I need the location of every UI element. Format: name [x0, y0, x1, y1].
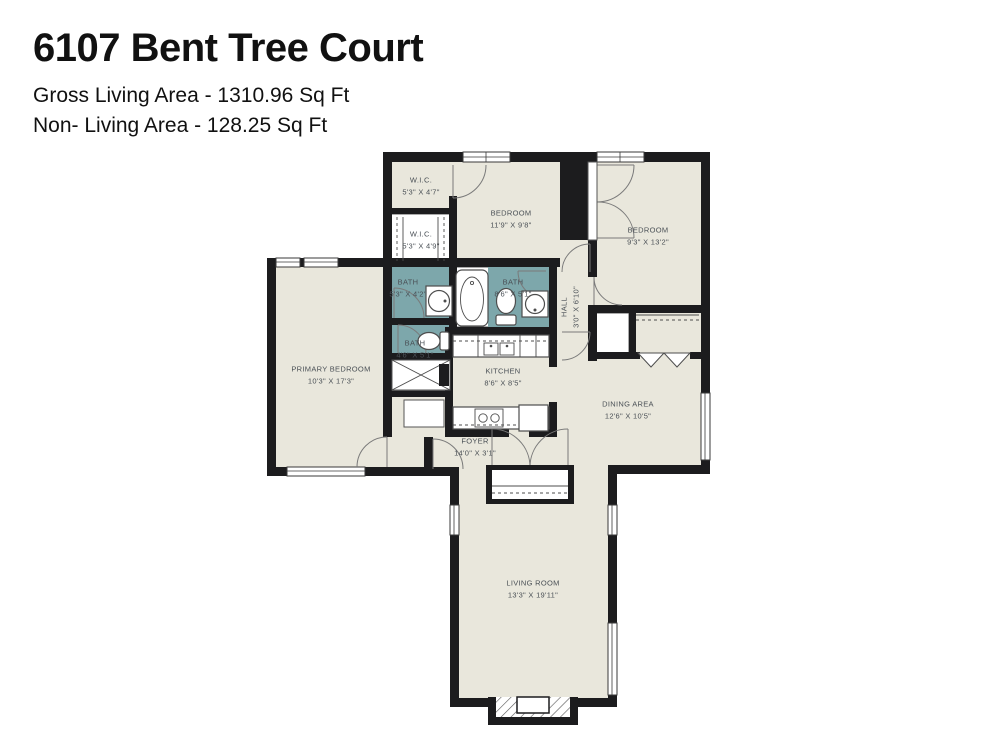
floor-plan-page: 6107 Bent Tree Court Gross Living Area -… — [0, 0, 1000, 750]
kitchen-counter — [453, 405, 549, 431]
room-label-wic1: W.I.C.5'3" X 4'7" — [402, 174, 439, 197]
room-dimensions: 4'6" X 5'1" — [396, 349, 433, 361]
room-label-kitchen: KITCHEN8'6" X 8'5" — [484, 365, 521, 388]
room-label-living: LIVING ROOM13'3" X 19'11" — [506, 577, 559, 600]
window — [701, 393, 710, 460]
room-label-foyer: FOYER14'0" X 3'1" — [454, 435, 496, 458]
room-dimensions: 8'6" X 5'1" — [494, 288, 531, 300]
room-label-primary: PRIMARY BEDROOM10'3" X 17'3" — [291, 363, 370, 386]
foyer-closet — [486, 465, 574, 504]
room-label-bath2: BATH8'6" X 5'1" — [494, 276, 531, 299]
room-label-bath1: BATH5'3" X 4'2" — [389, 276, 426, 299]
refrigerator-icon — [519, 405, 548, 431]
room-name: BEDROOM — [490, 207, 531, 219]
linen-cabinet — [404, 400, 444, 427]
room-dimensions: 14'0" X 3'1" — [454, 447, 496, 459]
room-label-bedroom2: BEDROOM9'3" X 13'2" — [627, 224, 669, 247]
room-dimensions: 5'3" X 4'9" — [402, 240, 439, 252]
sink-icon — [426, 286, 452, 316]
window — [276, 258, 300, 267]
room-name: FOYER — [454, 435, 496, 447]
window — [463, 152, 510, 162]
room-dimensions: 10'3" X 17'3" — [291, 375, 370, 387]
room-dimensions: 12'6" X 10'5" — [602, 410, 654, 422]
window — [304, 258, 338, 267]
room-name: KITCHEN — [484, 365, 521, 377]
room-name: HALL — [558, 286, 570, 328]
window — [608, 623, 617, 695]
room-name: LIVING ROOM — [506, 577, 559, 589]
room-name: BATH — [389, 276, 426, 288]
room-label-bedroom1: BEDROOM11'9" X 9'8" — [490, 207, 531, 230]
room-name: PRIMARY BEDROOM — [291, 363, 370, 375]
closet-strip — [588, 162, 597, 240]
room-dimensions: 5'3" X 4'7" — [402, 186, 439, 198]
bathtub-icon — [456, 270, 488, 326]
room-name: W.I.C. — [402, 174, 439, 186]
room-dimensions: 8'6" X 8'5" — [484, 377, 521, 389]
room-label-hall: HALL3'0" X 6'10" — [558, 286, 581, 328]
window — [287, 467, 365, 476]
room-dimensions: 3'0" X 6'10" — [570, 286, 582, 328]
room-name: BEDROOM — [627, 224, 669, 236]
room-label-wic2: W.I.C.5'3" X 4'9" — [402, 228, 439, 251]
room-dimensions: 9'3" X 13'2" — [627, 236, 669, 248]
room-name: DINING AREA — [602, 398, 654, 410]
room-name: W.I.C. — [402, 228, 439, 240]
room-dimensions: 11'9" X 9'8" — [490, 219, 531, 231]
window — [608, 505, 617, 535]
window — [450, 505, 459, 535]
room-dimensions: 5'3" X 4'2" — [389, 288, 426, 300]
room-label-dining: DINING AREA12'6" X 10'5" — [602, 398, 654, 421]
kitchen-counter — [453, 335, 549, 357]
entry-stoop — [488, 697, 578, 725]
window — [597, 152, 644, 162]
room-name: BATH — [396, 337, 433, 349]
room-name: BATH — [494, 276, 531, 288]
room-dimensions: 13'3" X 19'11" — [506, 589, 559, 601]
mechanical-closet — [392, 360, 450, 390]
room-label-bath3: BATH4'6" X 5'1" — [396, 337, 433, 360]
